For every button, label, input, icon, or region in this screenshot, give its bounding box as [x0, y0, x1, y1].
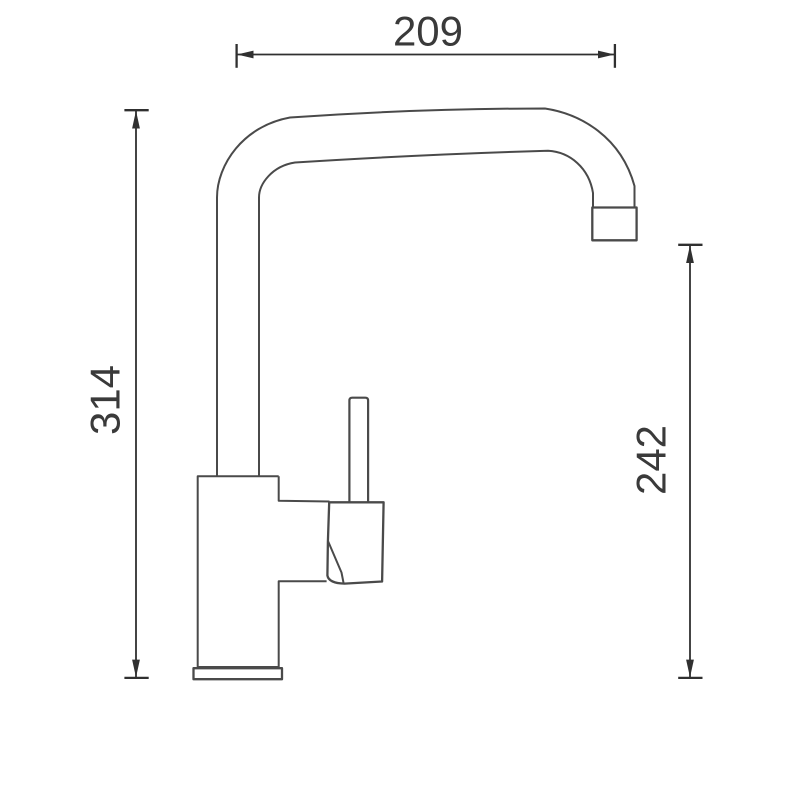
svg-text:242: 242: [627, 425, 674, 495]
svg-text:314: 314: [82, 365, 129, 435]
svg-text:209: 209: [393, 8, 463, 55]
